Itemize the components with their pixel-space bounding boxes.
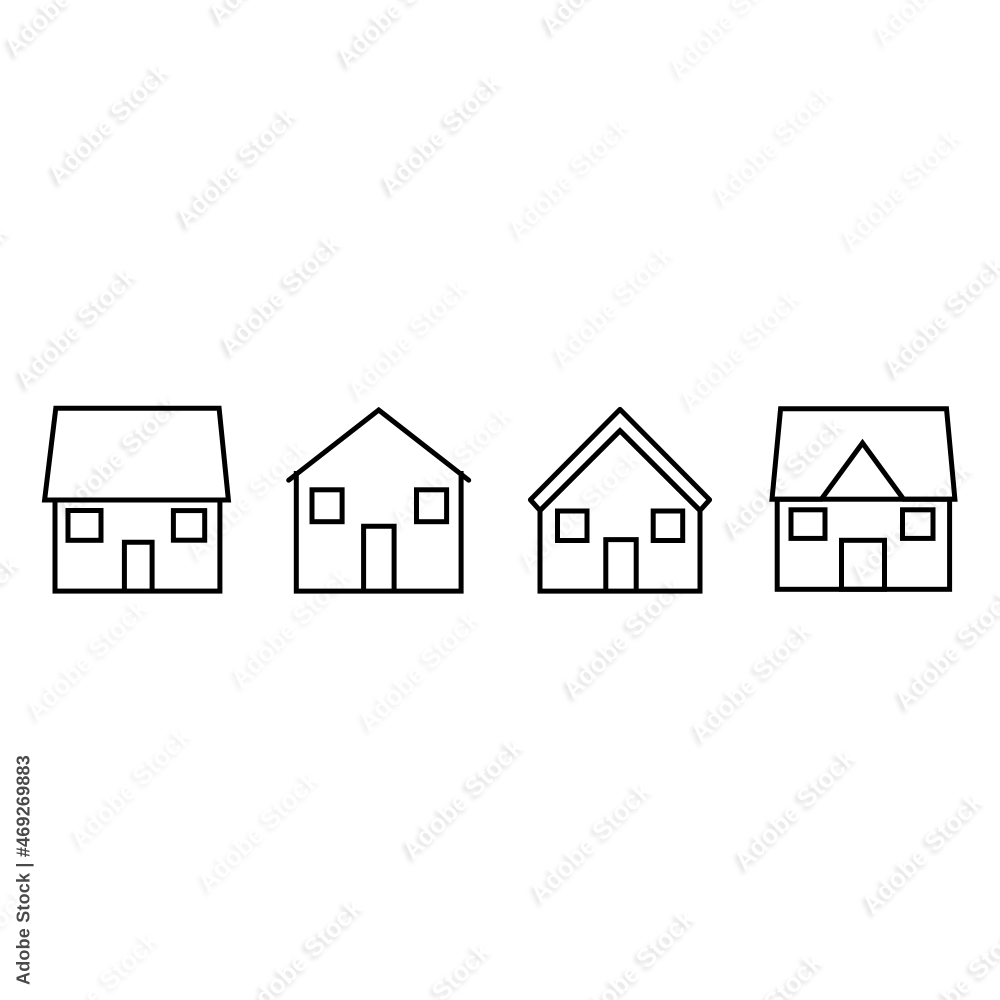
svg-text:Adobe Stock | #469269883: Adobe Stock | #469269883 [14,755,34,985]
